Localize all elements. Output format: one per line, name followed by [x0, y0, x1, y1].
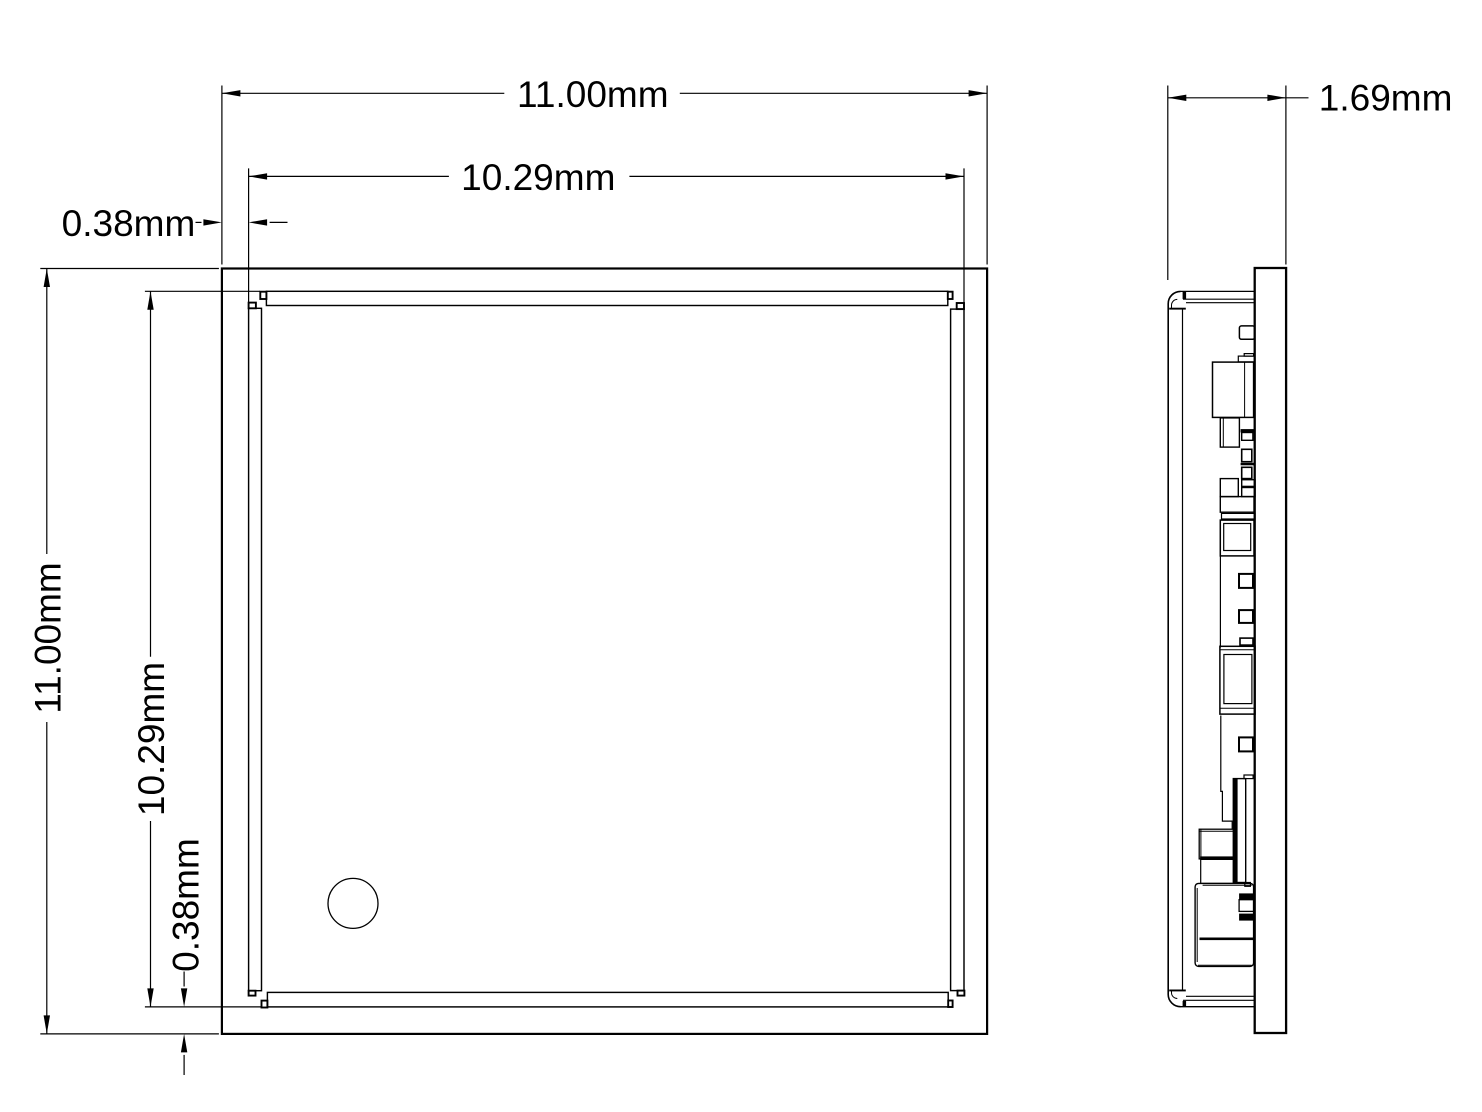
svg-text:1.69mm: 1.69mm — [1319, 77, 1453, 118]
svg-text:0.38mm: 0.38mm — [166, 838, 207, 972]
svg-text:0.38mm: 0.38mm — [62, 203, 196, 244]
svg-text:11.00mm: 11.00mm — [27, 562, 68, 714]
svg-text:10.29mm: 10.29mm — [461, 157, 615, 198]
svg-text:11.00mm: 11.00mm — [517, 74, 669, 115]
svg-text:10.29mm: 10.29mm — [131, 662, 172, 816]
